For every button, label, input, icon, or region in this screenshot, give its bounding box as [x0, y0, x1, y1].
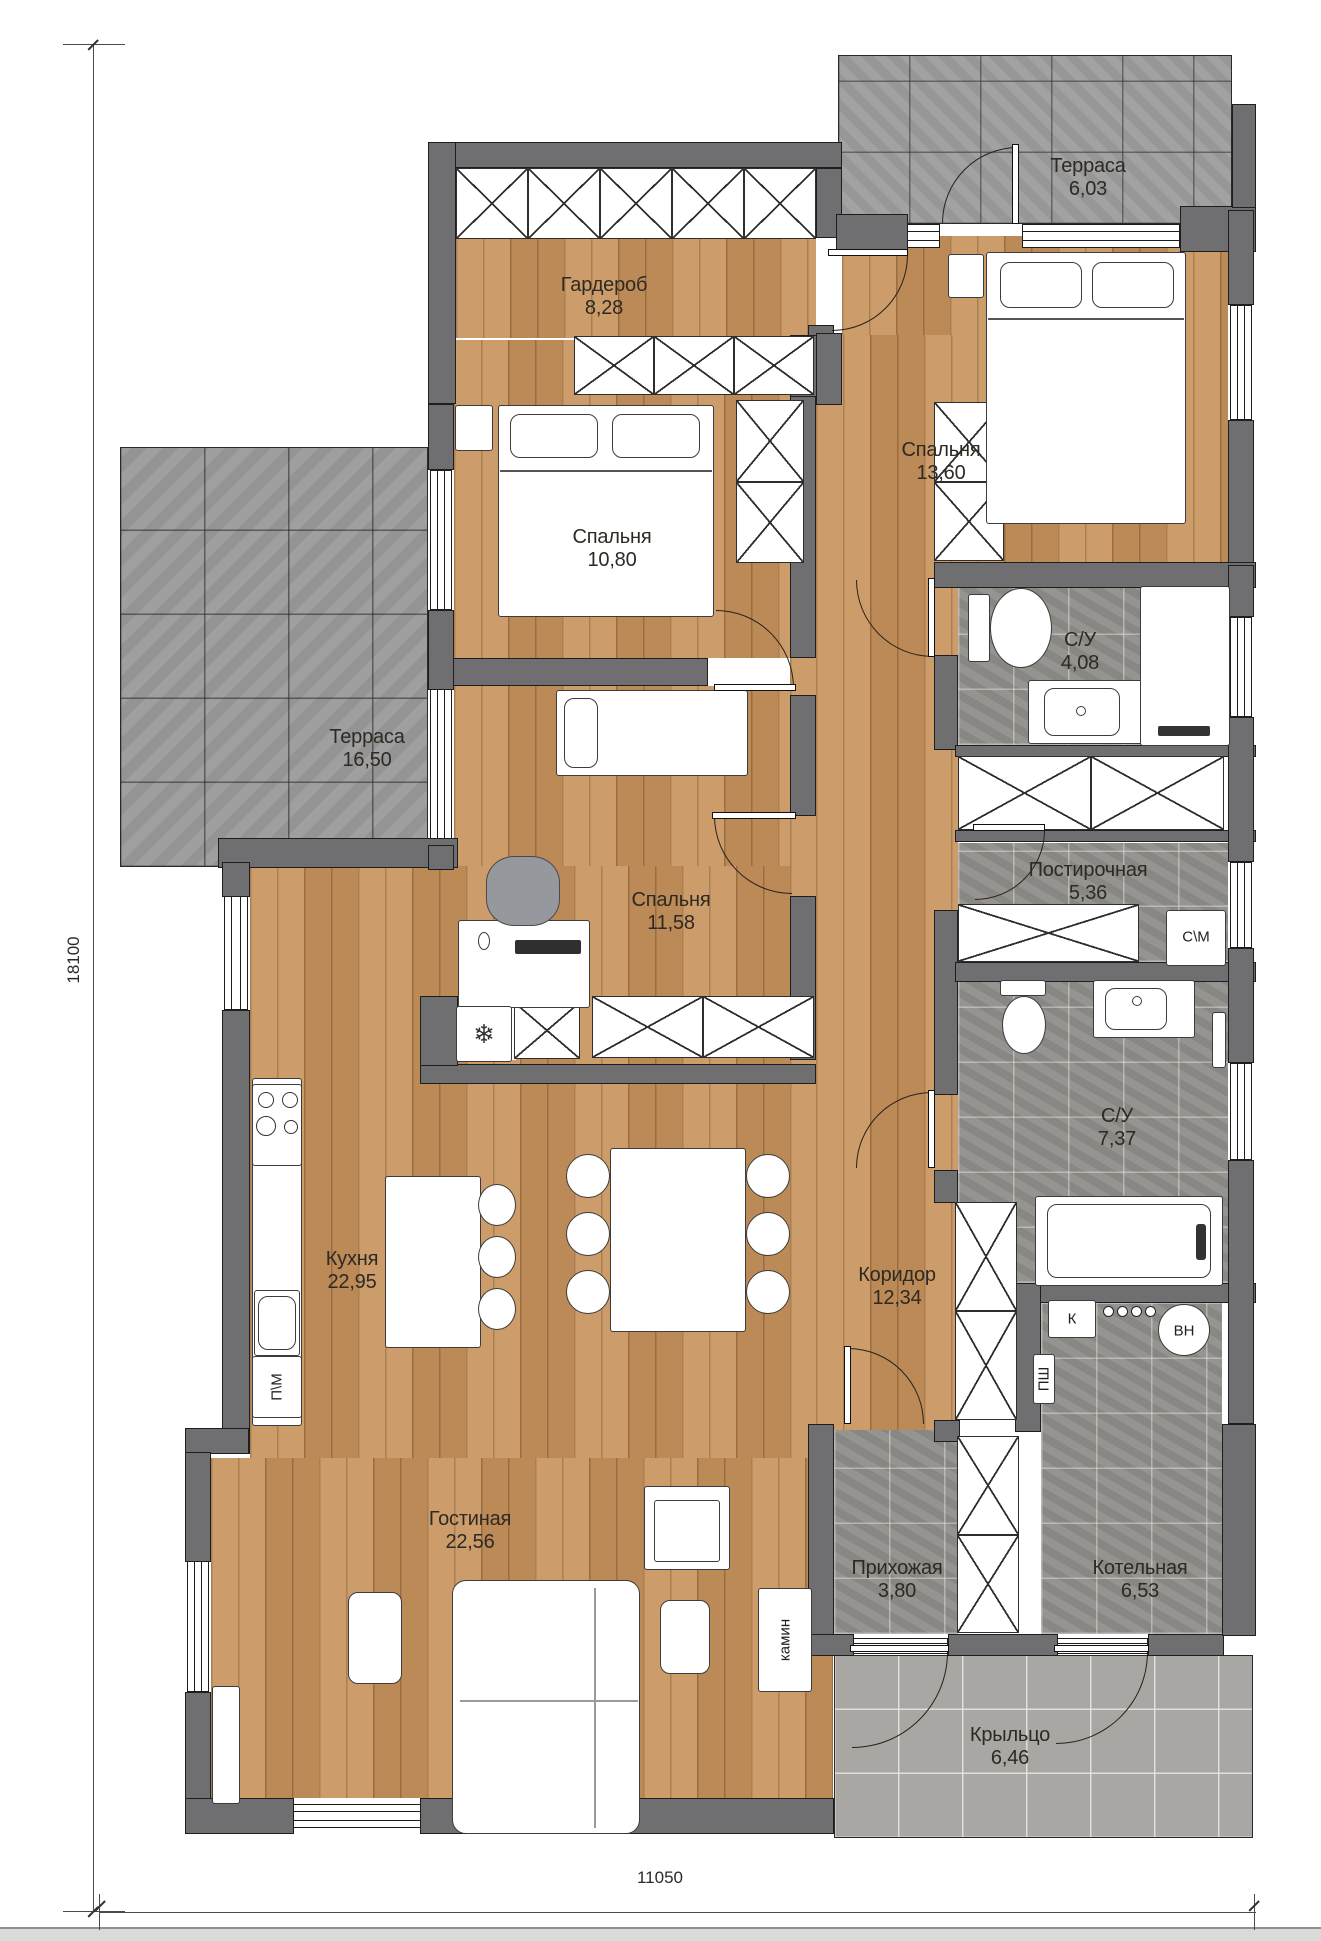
room-label-terrace-top: Терраса6,03: [1050, 155, 1125, 201]
door-leaf: [1012, 144, 1019, 224]
pillow: [1000, 262, 1082, 308]
door-leaf: [712, 812, 796, 819]
window: [1230, 1063, 1252, 1160]
door-leaf: [928, 578, 935, 657]
wardrobe-unit: [600, 168, 672, 239]
fridge: ❄: [456, 1006, 512, 1062]
room-area: 22,95: [326, 1271, 379, 1294]
floor-plan: ❄Терраса6,03Гардероб8,28Спальня13,60Спал…: [0, 0, 1321, 1941]
kitchen-island: [385, 1176, 481, 1348]
pillow: [1092, 262, 1174, 308]
room-label-terrace-left: Терраса16,50: [329, 726, 404, 772]
pouf: [660, 1600, 710, 1674]
closet-column: [736, 400, 804, 482]
window: [292, 1804, 422, 1828]
dimension-horizontal: 11050: [637, 1868, 683, 1888]
wall-segment: [185, 1798, 294, 1834]
wall-segment: [836, 214, 908, 250]
window: [1230, 862, 1252, 948]
stove-burner: [284, 1120, 298, 1134]
wall-segment: [626, 1798, 834, 1834]
dimension-vertical: 18100: [64, 936, 84, 983]
room-area: 16,50: [329, 749, 404, 772]
wall-segment: [1148, 1634, 1224, 1656]
room-name: Терраса: [329, 726, 404, 749]
door-leaf: [973, 824, 1045, 831]
pillow: [612, 414, 700, 458]
room-area: 22,56: [429, 1531, 511, 1554]
wall-segment: [1228, 717, 1254, 862]
toilet-tank: [1000, 980, 1046, 996]
wall-segment: [816, 333, 842, 405]
room-label-bathroom-1: С/У4,08: [1061, 629, 1099, 675]
wall-segment: [428, 404, 454, 470]
floor-terrace-left: [120, 447, 428, 867]
sofa-line: [460, 1700, 638, 1702]
wall-segment: [790, 695, 816, 816]
room-area: 6,03: [1050, 178, 1125, 201]
door-leaf: [928, 1090, 935, 1168]
room-name: Котельная: [1092, 1557, 1187, 1580]
window: [1230, 617, 1252, 717]
room-area: 3,80: [851, 1580, 942, 1603]
wall-segment: [1228, 1160, 1254, 1424]
pouf: [348, 1592, 402, 1684]
dining-chair: [746, 1154, 790, 1198]
dimension-tick: [99, 1894, 100, 1930]
wall-segment: [420, 1064, 816, 1084]
dining-chair: [566, 1212, 610, 1256]
bathtub-inner: [1047, 1204, 1211, 1278]
door-leaf: [844, 1346, 851, 1424]
room-name: Спальня: [573, 526, 652, 549]
room-area: 7,37: [1098, 1128, 1136, 1151]
wall-segment: [420, 996, 458, 1066]
shower-drain: [1158, 726, 1210, 736]
window: [430, 688, 452, 845]
wall-segment: [428, 142, 456, 404]
room-name: Крыльцо: [970, 1724, 1050, 1747]
window: [1022, 224, 1180, 248]
room-area: 5,36: [1029, 882, 1148, 905]
floor-hallway: [834, 1430, 958, 1634]
armchair-seat: [654, 1500, 720, 1562]
wall-segment: [1228, 948, 1254, 1063]
nightstand: [948, 254, 984, 298]
room-label-hallway: Прихожая3,80: [851, 1557, 942, 1603]
pillow: [510, 414, 598, 458]
dimension-tick: [1254, 1894, 1255, 1930]
room-label-laundry: Постирочная5,36: [1029, 859, 1148, 905]
wall-segment: [222, 862, 250, 897]
room-label-wardrobe: Гардероб8,28: [561, 274, 647, 320]
mouse: [478, 932, 490, 950]
wall-segment: [428, 845, 454, 870]
toilet-tank: [968, 594, 990, 662]
bedroom3-closet: [703, 996, 814, 1058]
wardrobe-unit: [672, 168, 744, 239]
bath-faucet: [1196, 1224, 1206, 1260]
dining-table: [610, 1148, 746, 1332]
corridor-closet: [955, 1311, 1017, 1420]
wardrobe-unit: [574, 336, 654, 395]
sink-basin: [258, 1296, 296, 1350]
wall-segment: [222, 1010, 250, 1454]
door-leaf: [850, 1645, 949, 1652]
corridor-closet: [955, 1202, 1017, 1311]
stove-burner: [258, 1092, 274, 1108]
room-area: 11,58: [632, 912, 711, 935]
wardrobe-unit: [528, 168, 600, 239]
tap: [1132, 996, 1142, 1006]
room-label-bedroom-2: Спальня10,80: [573, 526, 652, 572]
tap: [1076, 706, 1086, 716]
door-leaf: [1054, 1645, 1149, 1652]
room-name: Спальня: [902, 439, 981, 462]
corridor-closet: [958, 756, 1091, 830]
wall-segment: [452, 658, 708, 686]
desk: [458, 920, 590, 1008]
bar-stool: [478, 1236, 516, 1278]
equipment-label-fireplace: камин: [777, 1619, 794, 1661]
wall-segment: [1232, 104, 1256, 208]
wall-segment: [934, 910, 958, 1095]
bedroom3-closet: [592, 996, 703, 1058]
wall-segment: [428, 610, 454, 690]
dimension-line-vertical: [93, 45, 94, 1912]
wall-segment: [1228, 420, 1254, 565]
room-label-living-room: Гостиная22,56: [429, 1508, 511, 1554]
desk-chair: [486, 856, 560, 926]
room-label-boiler-room: Котельная6,53: [1092, 1557, 1187, 1603]
room-label-bedroom-1: Спальня13,60: [902, 439, 981, 485]
bar-stool: [478, 1184, 516, 1226]
wall-segment: [1222, 1424, 1256, 1636]
room-area: 10,80: [573, 549, 652, 572]
wardrobe-unit: [456, 168, 528, 239]
room-area: 6,46: [970, 1747, 1050, 1770]
pipe-valve: [1145, 1306, 1156, 1317]
wall-segment: [218, 838, 458, 868]
wall-segment: [948, 1634, 1058, 1656]
room-name: С/У: [1061, 629, 1099, 652]
towel-rail: [1212, 1012, 1226, 1068]
room-area: 8,28: [561, 297, 647, 320]
equipment-label-dishwasher: П\М: [269, 1373, 286, 1400]
shower-tray: [1140, 586, 1230, 746]
blanket-line: [500, 470, 712, 472]
room-name: Постирочная: [1029, 859, 1148, 882]
hallway-closet: [957, 1436, 1019, 1535]
room-label-porch: Крыльцо6,46: [970, 1724, 1050, 1770]
room-name: С/У: [1098, 1105, 1136, 1128]
pipe-valve: [1131, 1306, 1142, 1317]
dining-chair: [746, 1212, 790, 1256]
sofa-line: [594, 1588, 596, 1828]
window: [1230, 305, 1252, 420]
pipe-valve: [1103, 1306, 1114, 1317]
toilet-bowl: [990, 588, 1052, 668]
dimension-line-horizontal: [100, 1912, 1256, 1913]
dining-chair: [566, 1270, 610, 1314]
equipment-label-water-heater: ВН: [1174, 1323, 1195, 1340]
window: [224, 895, 248, 1010]
closet-column: [736, 482, 804, 564]
room-label-kitchen: Кухня22,95: [326, 1248, 379, 1294]
wall-segment: [1228, 565, 1254, 617]
room-name: Спальня: [632, 889, 711, 912]
stove-burner: [256, 1116, 276, 1136]
window: [187, 1560, 209, 1692]
wall-segment: [1228, 210, 1254, 305]
wall-segment: [185, 1452, 211, 1562]
laundry-closet: [958, 904, 1139, 962]
room-label-bathroom-2: С/У7,37: [1098, 1105, 1136, 1151]
tv-console: [212, 1686, 240, 1804]
keyboard: [515, 940, 581, 954]
wall-segment: [934, 655, 958, 750]
room-area: 4,08: [1061, 652, 1099, 675]
fridge-icon: ❄: [473, 1019, 495, 1050]
room-area: 6,53: [1092, 1580, 1187, 1603]
corridor-closet: [1091, 756, 1224, 830]
room-area: 12,34: [858, 1287, 936, 1310]
wall-segment: [428, 142, 842, 168]
wardrobe-unit: [734, 336, 814, 395]
pipe-valve: [1117, 1306, 1128, 1317]
room-name: Терраса: [1050, 155, 1125, 178]
wall-segment: [185, 1428, 249, 1454]
floor-terrace-top: [838, 55, 1232, 224]
footer-bar: [0, 1927, 1321, 1941]
wall-segment: [808, 1634, 854, 1656]
bedroom3-closet: [514, 1002, 580, 1059]
hallway-closet: [957, 1535, 1019, 1634]
room-label-corridor: Коридор12,34: [858, 1264, 936, 1310]
room-area: 13,60: [902, 462, 981, 485]
equipment-label-boiler: К: [1068, 1311, 1077, 1328]
blanket-line: [988, 318, 1184, 320]
room-name: Кухня: [326, 1248, 379, 1271]
room-name: Гардероб: [561, 274, 647, 297]
door-leaf: [714, 684, 796, 691]
wall-segment: [185, 1692, 211, 1800]
bar-stool: [478, 1288, 516, 1330]
stove-burner: [282, 1092, 298, 1108]
room-name: Прихожая: [851, 1557, 942, 1580]
window: [430, 470, 452, 610]
dining-chair: [746, 1270, 790, 1314]
nightstand: [455, 405, 493, 451]
pillow: [564, 698, 598, 768]
dining-chair: [566, 1154, 610, 1198]
toilet-bowl: [1002, 996, 1046, 1054]
equipment-label-cabinet: ПШ: [1036, 1367, 1053, 1392]
sofa: [452, 1580, 640, 1834]
equipment-label-washing-machine: С\М: [1182, 929, 1210, 946]
wall-segment: [934, 562, 1256, 588]
room-name: Гостиная: [429, 1508, 511, 1531]
door-leaf: [828, 249, 908, 256]
wardrobe-unit: [654, 336, 734, 395]
wall-segment: [934, 1170, 958, 1203]
sink-basin: [1105, 988, 1167, 1030]
room-name: Коридор: [858, 1264, 936, 1287]
room-label-bedroom-3: Спальня11,58: [632, 889, 711, 935]
wardrobe-unit: [744, 168, 816, 239]
